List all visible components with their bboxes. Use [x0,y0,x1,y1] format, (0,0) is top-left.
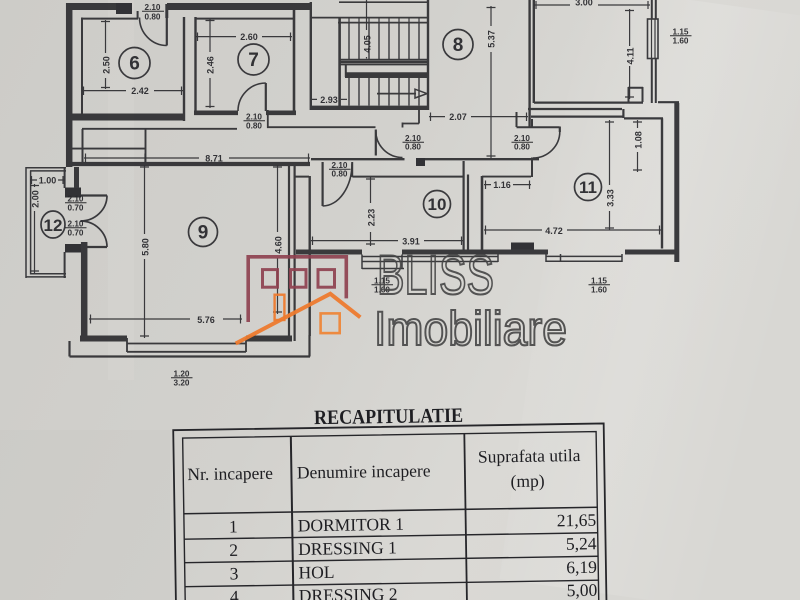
svg-text:2.10: 2.10 [246,113,262,122]
svg-text:10: 10 [428,195,447,214]
svg-text:3: 3 [229,563,238,583]
svg-text:DORMITOR 1: DORMITOR 1 [298,514,404,536]
svg-text:6: 6 [129,54,140,75]
svg-text:11: 11 [579,178,597,197]
svg-text:(mp): (mp) [510,471,544,492]
svg-text:BLISS: BLISS [377,243,494,306]
svg-text:7: 7 [248,50,259,71]
svg-text:1.60: 1.60 [673,37,689,46]
svg-text:DRESSING 2: DRESSING 2 [299,584,398,600]
svg-text:Nr. incapere: Nr. incapere [187,463,273,484]
svg-text:2.07: 2.07 [449,112,467,122]
svg-text:2.46: 2.46 [206,56,216,74]
svg-text:0.80: 0.80 [145,13,161,22]
svg-text:4.11: 4.11 [626,47,636,64]
svg-text:2.10: 2.10 [68,220,84,229]
svg-text:1.00: 1.00 [39,176,57,186]
svg-text:1.20: 1.20 [174,370,190,379]
svg-text:1.15: 1.15 [673,28,689,37]
svg-text:1.60: 1.60 [591,286,607,295]
svg-text:21,65: 21,65 [557,510,597,531]
svg-text:2.00: 2.00 [31,190,41,208]
svg-text:2: 2 [229,540,238,560]
svg-text:1.08: 1.08 [634,131,644,149]
svg-text:0.80: 0.80 [332,170,348,179]
svg-text:1.15: 1.15 [591,277,607,286]
svg-text:2.10: 2.10 [68,195,84,204]
svg-text:6,19: 6,19 [566,557,597,577]
svg-text:0.70: 0.70 [68,204,84,213]
svg-text:1.16: 1.16 [493,180,511,190]
svg-text:4.60: 4.60 [274,236,284,254]
svg-text:4.05: 4.05 [363,35,373,53]
svg-text:3.20: 3.20 [174,379,190,388]
svg-text:2.10: 2.10 [145,3,161,12]
svg-text:Imobiliare: Imobiliare [374,303,567,356]
svg-text:5,24: 5,24 [566,533,597,553]
svg-text:2.23: 2.23 [367,209,377,227]
svg-text:8.71: 8.71 [205,154,223,164]
svg-text:2.60: 2.60 [240,32,258,42]
svg-text:9: 9 [198,223,209,244]
svg-text:5.76: 5.76 [197,315,215,325]
svg-text:8: 8 [453,35,464,56]
svg-text:0.80: 0.80 [514,143,530,152]
svg-text:HOL: HOL [298,562,334,583]
svg-text:2.93: 2.93 [320,95,338,105]
svg-text:5,00: 5,00 [567,580,598,600]
svg-text:5.80: 5.80 [141,238,151,256]
svg-text:5.37: 5.37 [487,30,497,48]
svg-text:4.72: 4.72 [545,226,563,236]
svg-text:1: 1 [229,516,238,536]
svg-text:Denumire incapere: Denumire incapere [297,460,431,482]
svg-text:0.80: 0.80 [246,122,262,131]
svg-text:2.42: 2.42 [131,86,149,96]
svg-text:0.70: 0.70 [68,229,84,238]
svg-text:4: 4 [230,586,239,600]
svg-text:2.50: 2.50 [102,56,112,74]
svg-text:3.00: 3.00 [575,0,593,8]
svg-text:12: 12 [44,216,63,235]
svg-text:0.80: 0.80 [405,143,421,152]
svg-text:DRESSING 1: DRESSING 1 [298,537,397,559]
svg-text:3.33: 3.33 [606,189,616,207]
svg-text:Suprafata utila: Suprafata utila [478,445,581,467]
